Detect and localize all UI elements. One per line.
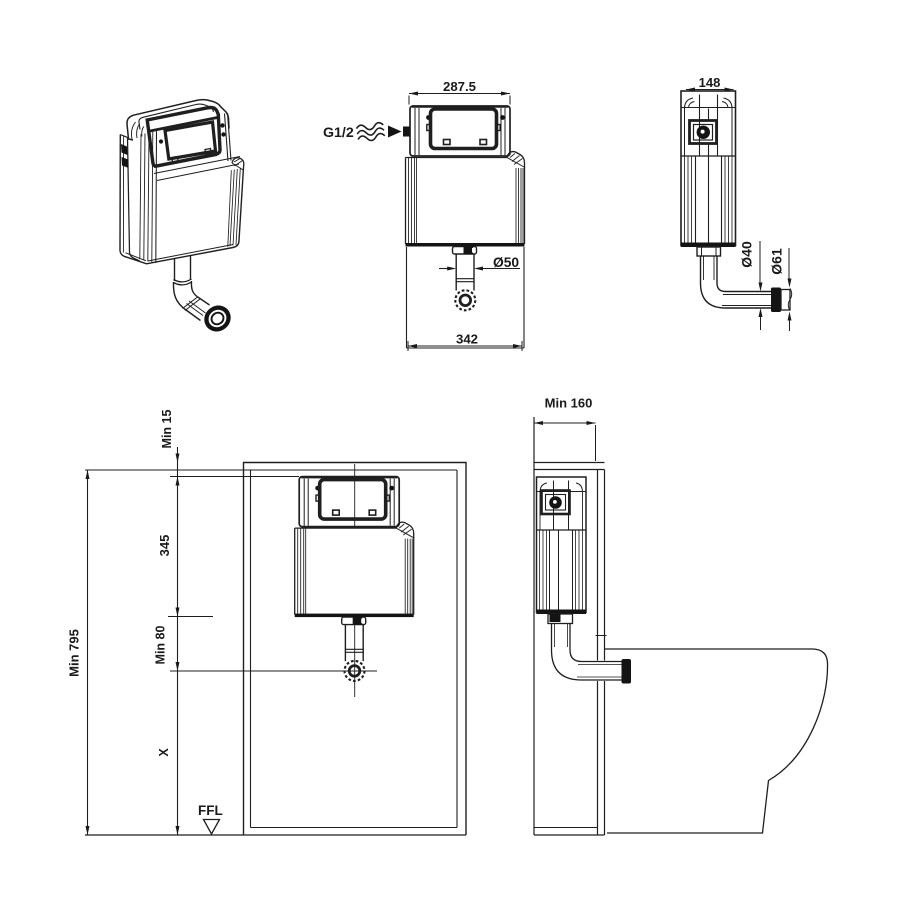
svg-text:Min 795: Min 795 bbox=[67, 629, 82, 677]
svg-text:Min 80: Min 80 bbox=[154, 626, 168, 665]
svg-text:X: X bbox=[157, 748, 171, 757]
svg-text:Ø40: Ø40 bbox=[739, 241, 755, 268]
svg-text:Min 15: Min 15 bbox=[160, 410, 174, 449]
svg-text:Min 160: Min 160 bbox=[545, 396, 593, 411]
svg-text:Ø61: Ø61 bbox=[769, 248, 785, 275]
svg-text:345: 345 bbox=[157, 535, 172, 557]
svg-text:287.5: 287.5 bbox=[443, 79, 476, 94]
svg-text:148: 148 bbox=[699, 75, 721, 90]
svg-text:G1/2: G1/2 bbox=[323, 125, 354, 141]
svg-text:Ø50: Ø50 bbox=[493, 255, 519, 270]
svg-text:FFL: FFL bbox=[198, 803, 223, 818]
svg-text:342: 342 bbox=[456, 332, 478, 347]
